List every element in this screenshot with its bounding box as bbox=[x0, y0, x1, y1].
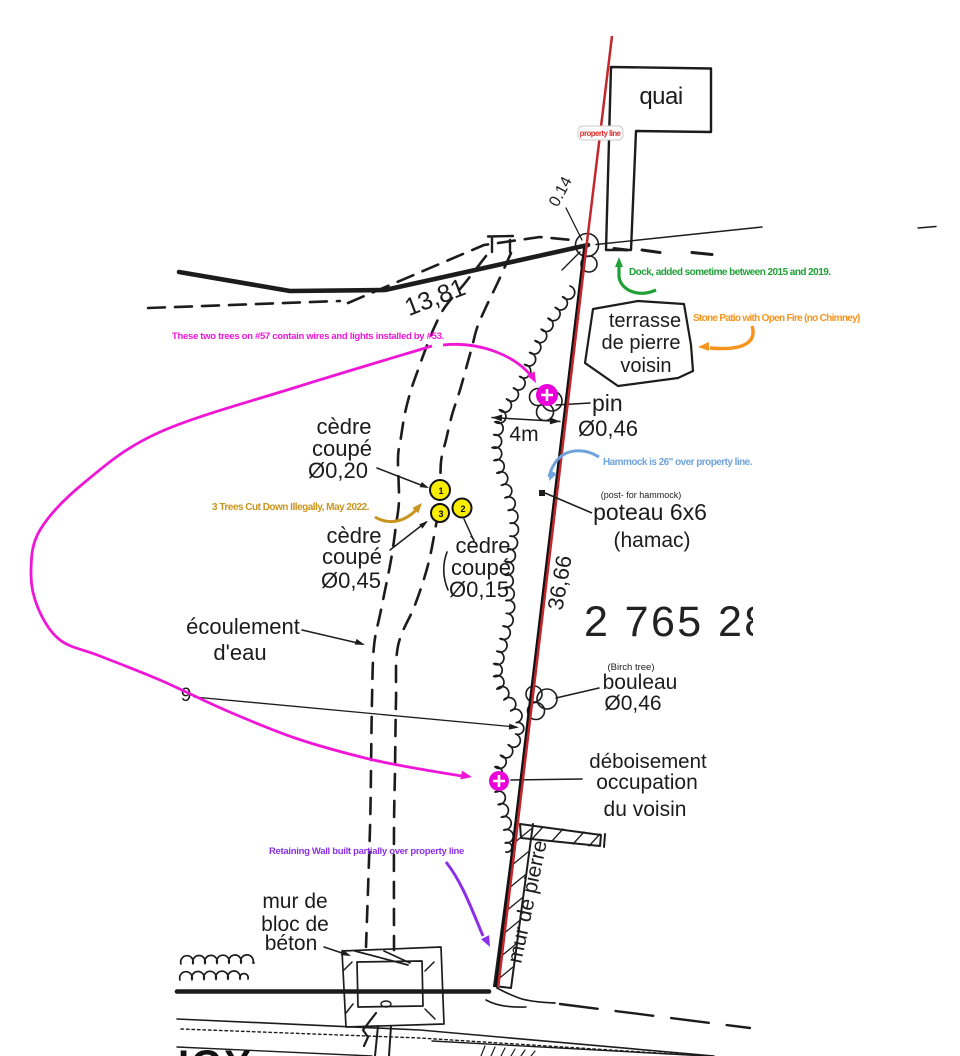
svg-text:Ø0,45: Ø0,45 bbox=[321, 568, 381, 593]
svg-text:quai: quai bbox=[639, 83, 682, 110]
svg-text:Ø0,46: Ø0,46 bbox=[578, 416, 638, 441]
svg-text:voisin: voisin bbox=[620, 355, 671, 377]
svg-text:mur de: mur de bbox=[262, 890, 327, 913]
svg-text:1: 1 bbox=[438, 486, 443, 496]
svg-text:d'eau: d'eau bbox=[213, 640, 266, 665]
svg-text:Stone Patio with Open Fire (no: Stone Patio with Open Fire (no Chimney) bbox=[693, 313, 860, 324]
svg-text:terrasse: terrasse bbox=[609, 310, 681, 332]
svg-text:These two trees on #57 contain: These two trees on #57 contain wires and… bbox=[172, 331, 444, 342]
svg-text:Ø0,15: Ø0,15 bbox=[449, 577, 509, 602]
svg-text:pin: pin bbox=[592, 390, 623, 416]
svg-text:coupé: coupé bbox=[322, 544, 382, 569]
svg-text:3 Trees Cut Down Illegally, Ma: 3 Trees Cut Down Illegally, May 2022. bbox=[212, 502, 370, 513]
svg-text:Ø0,20: Ø0,20 bbox=[308, 458, 368, 483]
svg-text:Ø0,46: Ø0,46 bbox=[604, 692, 661, 715]
svg-text:béton: béton bbox=[265, 932, 318, 955]
svg-text:9: 9 bbox=[181, 685, 192, 706]
svg-text:property line: property line bbox=[580, 129, 622, 138]
svg-text:du voisin: du voisin bbox=[604, 798, 687, 821]
svg-text:bouleau: bouleau bbox=[603, 671, 678, 694]
svg-text:IGY: IGY bbox=[178, 1043, 253, 1056]
svg-text:écoulement: écoulement bbox=[186, 614, 300, 639]
svg-text:poteau 6x6: poteau 6x6 bbox=[593, 499, 707, 525]
svg-text:3: 3 bbox=[438, 509, 443, 519]
svg-text:Hammock is 26" over property l: Hammock is 26" over property line. bbox=[603, 457, 753, 468]
svg-text:de pierre: de pierre bbox=[602, 332, 681, 354]
svg-text:Retaining Wall built partially: Retaining Wall built partially over prop… bbox=[269, 846, 464, 857]
svg-text:(hamac): (hamac) bbox=[613, 529, 690, 552]
svg-text:Dock, added sometime between 2: Dock, added sometime between 2015 and 20… bbox=[629, 267, 831, 278]
svg-text:déboisement: déboisement bbox=[589, 750, 707, 773]
svg-text:4m: 4m bbox=[509, 423, 538, 446]
svg-text:2 765 28: 2 765 28 bbox=[584, 598, 771, 646]
svg-text:2: 2 bbox=[460, 504, 465, 514]
svg-text:occupation: occupation bbox=[596, 771, 698, 794]
